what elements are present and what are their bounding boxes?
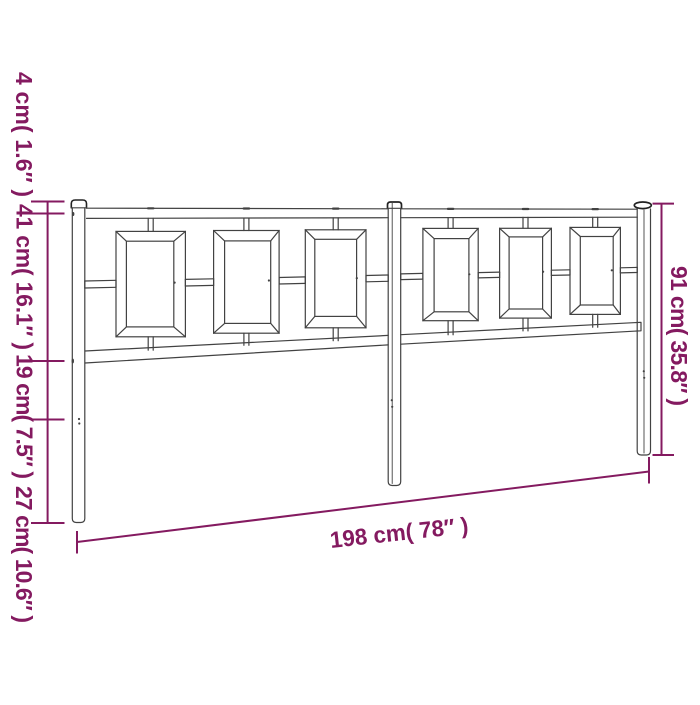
svg-text:41 cm( 16.1″ ): 41 cm( 16.1″ ) <box>12 204 38 350</box>
svg-text:198 cm( 78″ ): 198 cm( 78″ ) <box>329 512 470 553</box>
svg-text:91 cm( 35.8″ ): 91 cm( 35.8″ ) <box>666 266 692 406</box>
svg-text:4 cm( 1.6″ ): 4 cm( 1.6″ ) <box>11 72 37 197</box>
svg-text:19 cm( 7.5″ ): 19 cm( 7.5″ ) <box>12 354 38 479</box>
svg-text:27 cm( 10.6″ ): 27 cm( 10.6″ ) <box>11 486 37 623</box>
